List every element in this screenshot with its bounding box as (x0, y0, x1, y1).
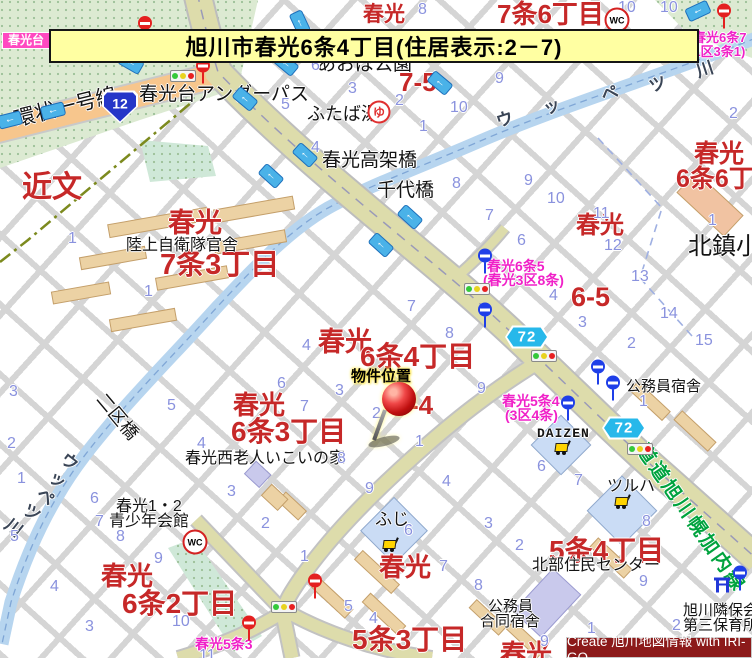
traffic-light-icon (464, 283, 490, 295)
route-72-icon: 72 (602, 417, 646, 440)
one-way-arrow-icon (684, 0, 712, 22)
icon-layer: WCWCゆ127272 (0, 0, 752, 658)
no-entry-icon (717, 4, 731, 29)
traffic-light-icon (627, 443, 653, 455)
title-banner: 旭川市春光6条4丁目(住居表示:2－7) (49, 29, 699, 63)
cart-icon (613, 493, 631, 509)
wc-icon: WC (183, 530, 208, 555)
bus-stop-icon (591, 360, 605, 385)
one-way-arrow-icon (396, 204, 423, 230)
bus-stop-icon (478, 249, 492, 274)
property-pin (368, 382, 416, 448)
credit-bar: Create 旭川地図情報 with IRI-GO (566, 637, 752, 658)
map: 春光7条6丁目春光6条6丁目近文春光7条3丁目7-5春光6-5春光6条4丁目-4… (0, 0, 752, 658)
one-way-arrow-icon (426, 70, 453, 96)
one-way-arrow-icon (0, 110, 23, 129)
bus-stop-icon (733, 566, 747, 591)
route-72-icon: 72 (505, 326, 549, 349)
traffic-light-icon (531, 350, 557, 362)
bus-stop-icon (478, 303, 492, 328)
one-way-arrow-icon (291, 142, 318, 168)
no-entry-icon (242, 616, 256, 641)
cart-icon (553, 439, 571, 455)
one-way-arrow-icon (40, 101, 67, 120)
one-way-arrow-icon (367, 232, 394, 258)
bus-stop-icon (606, 376, 620, 401)
one-way-arrow-icon (257, 163, 284, 189)
pin-ball (382, 382, 416, 416)
bath-icon: ゆ (368, 101, 391, 124)
no-entry-icon (138, 16, 152, 30)
route-12-icon: 12 (102, 91, 138, 124)
no-entry-icon (308, 574, 322, 599)
one-way-arrow-icon (231, 86, 258, 112)
traffic-light-icon (271, 601, 297, 613)
cart-icon (381, 536, 399, 552)
torii-icon (714, 578, 730, 593)
traffic-light-icon (170, 70, 196, 82)
bus-stop-icon (561, 396, 575, 421)
